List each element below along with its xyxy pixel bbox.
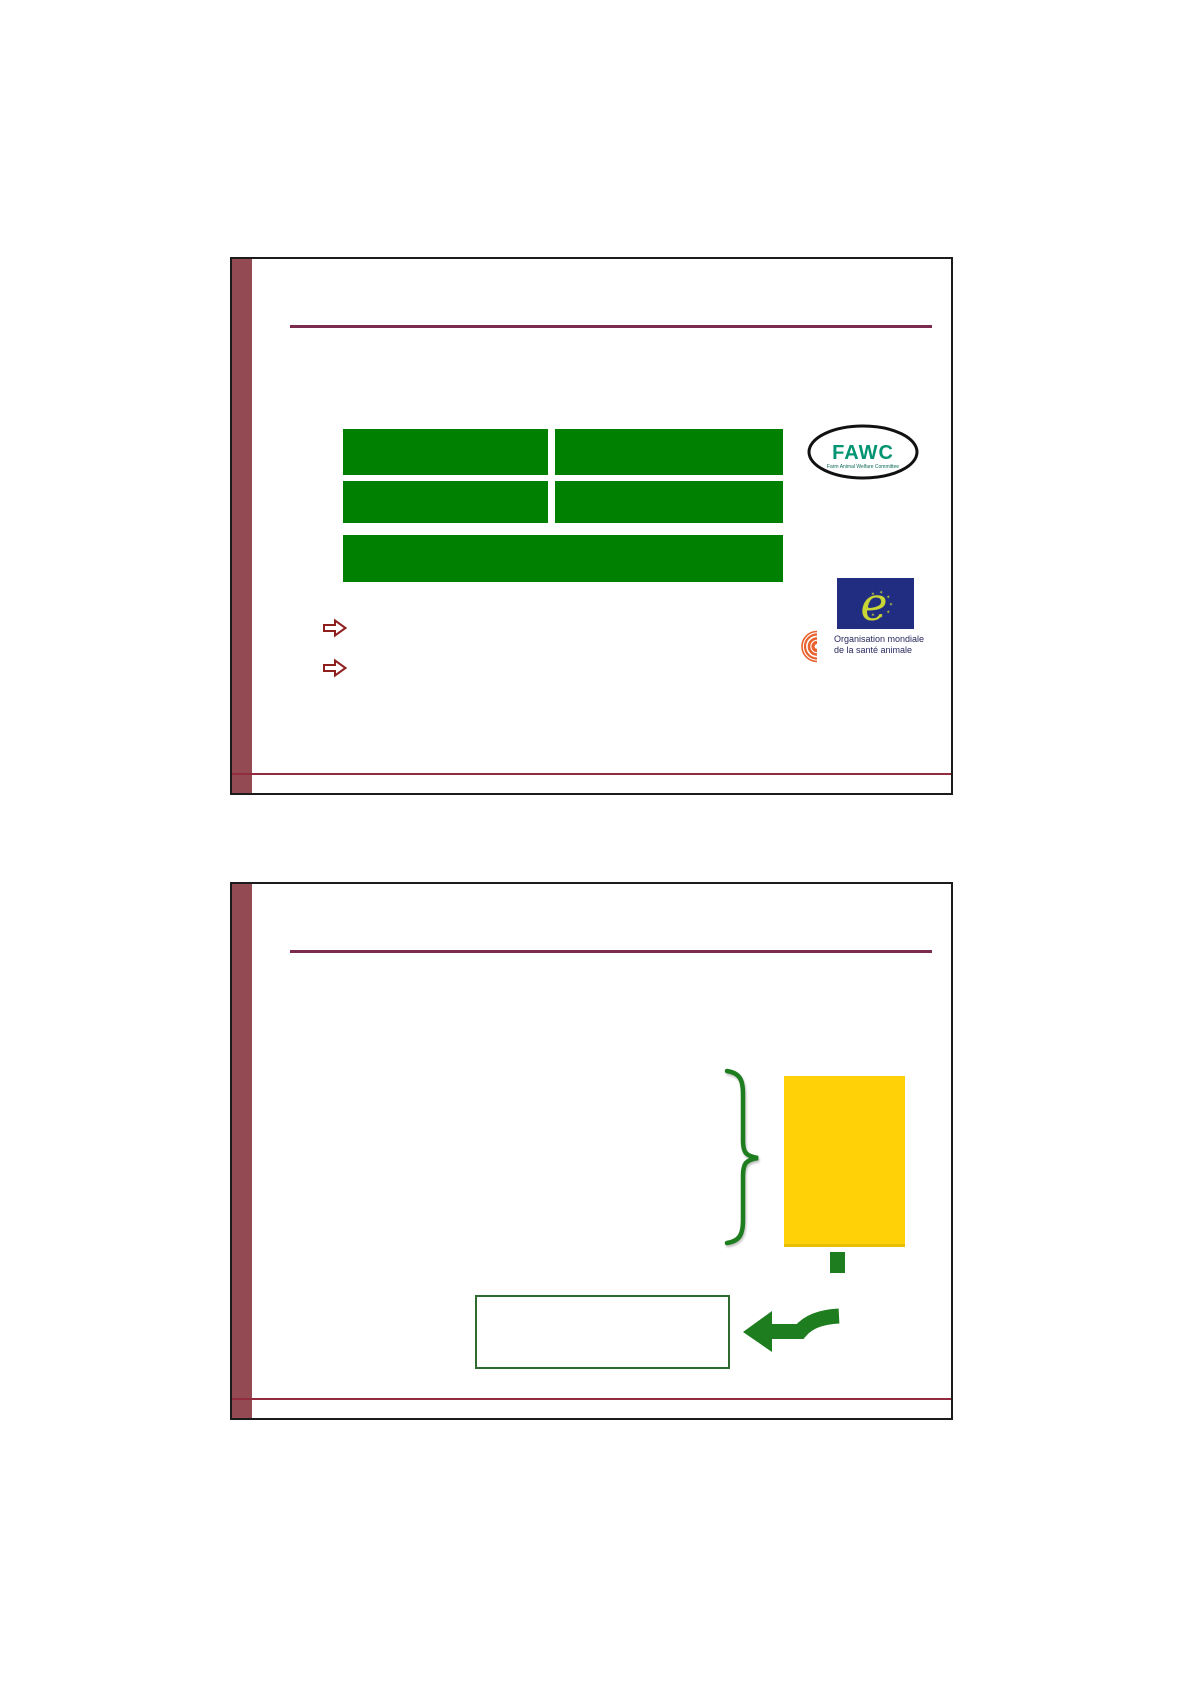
outlined-result-box xyxy=(475,1295,730,1369)
svg-text:✶: ✶ xyxy=(866,606,870,612)
curly-brace-icon xyxy=(722,1068,764,1246)
title-underline-rule xyxy=(290,950,932,953)
fawc-title: FAWC xyxy=(832,442,894,464)
title-underline-rule xyxy=(290,325,932,328)
bent-left-arrow-icon xyxy=(740,1306,842,1354)
slide-1: FAWC Farm Animal Welfare Committee e ✶ ✶… xyxy=(230,257,953,795)
svg-text:✶: ✶ xyxy=(879,590,883,596)
oie-wordmark-line2: de la santé animale xyxy=(834,645,924,656)
text-placeholder-bar-5 xyxy=(343,535,783,582)
svg-text:✶: ✶ xyxy=(886,594,890,600)
oie-spiral-icon xyxy=(800,630,825,663)
svg-text:✶: ✶ xyxy=(871,612,875,618)
text-placeholder-bar-1 xyxy=(343,429,548,475)
text-placeholder-bar-4 xyxy=(555,481,783,523)
fawc-subtitle: Farm Animal Welfare Committee xyxy=(827,464,899,470)
slide-2 xyxy=(230,882,953,1420)
fawc-logo: FAWC Farm Animal Welfare Committee xyxy=(806,424,920,481)
bullet-arrow-icon-2 xyxy=(322,658,348,678)
yellow-highlight-panel xyxy=(784,1076,905,1247)
svg-text:✶: ✶ xyxy=(879,614,883,620)
oie-logo: Organisation mondiale de la santé animal… xyxy=(800,630,950,666)
svg-text:✶: ✶ xyxy=(871,592,875,598)
text-placeholder-bar-3 xyxy=(343,481,548,523)
svg-text:✶: ✶ xyxy=(886,610,890,616)
oie-wordmark-line1: Organisation mondiale xyxy=(834,634,924,645)
oie-wordmark: Organisation mondiale de la santé animal… xyxy=(834,634,924,656)
bullet-arrow-icon-1 xyxy=(322,618,348,638)
footer-rule xyxy=(232,1398,951,1400)
handout-page: FAWC Farm Animal Welfare Committee e ✶ ✶… xyxy=(0,0,1190,1684)
council-of-europe-logo: e ✶ ✶ ✶ ✶ ✶ ✶ ✶ ✶ ✶ xyxy=(837,578,914,629)
svg-text:✶: ✶ xyxy=(889,602,893,608)
svg-text:✶: ✶ xyxy=(866,598,870,604)
coe-letter-e: e xyxy=(860,578,887,629)
slide-accent-sidebar xyxy=(232,884,252,1418)
slide-accent-sidebar xyxy=(232,259,252,793)
green-connector-square xyxy=(830,1252,845,1273)
text-placeholder-bar-2 xyxy=(555,429,783,475)
footer-rule xyxy=(232,773,951,775)
